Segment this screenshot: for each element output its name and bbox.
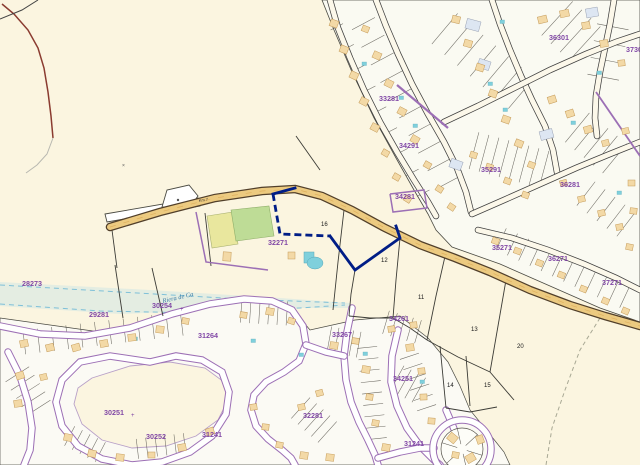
sports-field-green bbox=[231, 206, 274, 241]
block-label-34281: 34281 bbox=[395, 192, 415, 201]
block-label-35291: 35291 bbox=[481, 165, 501, 174]
block-label-32281: 32281 bbox=[303, 411, 323, 420]
block-label-34261: 34261 bbox=[389, 314, 409, 323]
parcel-number-13: 13 bbox=[471, 327, 478, 333]
map-viewport[interactable]: ×282732928130254302513126431241302523124… bbox=[0, 0, 640, 465]
block-label-34251: 34251 bbox=[393, 374, 413, 383]
block-label-32271: 32271 bbox=[268, 238, 288, 247]
block-label-36271: 36271 bbox=[548, 254, 568, 263]
block-label-31264: 31264 bbox=[198, 331, 218, 340]
block-label-30252: 30252 bbox=[146, 432, 166, 441]
parcel-number-20: 20 bbox=[517, 344, 524, 350]
parcel-number-11: 11 bbox=[418, 295, 425, 301]
block-label-36281: 36281 bbox=[560, 180, 580, 189]
block-label-35271: 35271 bbox=[492, 243, 512, 252]
block-label-29281: 29281 bbox=[89, 310, 109, 319]
block-label-37301: 37301 bbox=[626, 45, 640, 54]
point-marker: × bbox=[122, 163, 125, 169]
block-label-37271: 37271 bbox=[602, 278, 622, 287]
cadastral-map[interactable]: ×282732928130254302513126431241302523124… bbox=[0, 0, 640, 465]
parcel-number-12: 12 bbox=[381, 258, 388, 264]
block-label-31241: 31241 bbox=[404, 439, 424, 448]
survey-cross: + bbox=[180, 307, 184, 313]
block-label-33281: 33281 bbox=[379, 94, 399, 103]
block-label-30251: 30251 bbox=[104, 408, 124, 417]
parcel-number-14: 14 bbox=[447, 383, 454, 389]
survey-cross: + bbox=[131, 413, 135, 419]
block-label-36301: 36301 bbox=[549, 33, 569, 42]
parcel-number-16: 16 bbox=[321, 222, 328, 228]
block-label-33267: 33267 bbox=[332, 330, 352, 339]
block-label-28273: 28273 bbox=[22, 279, 42, 288]
parcel-number-15: 15 bbox=[484, 383, 491, 389]
block-label-31241: 31241 bbox=[202, 430, 222, 439]
block-label-34291: 34291 bbox=[399, 141, 419, 150]
